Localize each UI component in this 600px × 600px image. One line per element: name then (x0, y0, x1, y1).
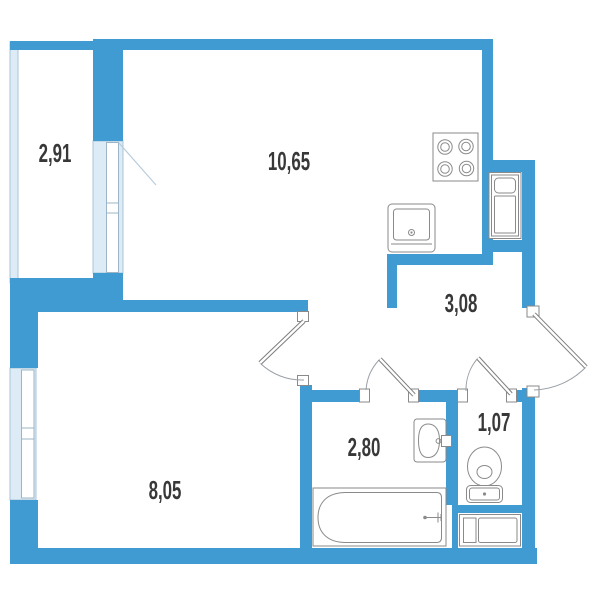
door-jamb (527, 386, 539, 397)
wall-balcony-top (10, 41, 95, 50)
wall-outer-left-upper (10, 278, 38, 368)
wall-hallway-left (387, 254, 397, 308)
door-jamb (360, 389, 370, 402)
wall-bathroom-wc (446, 390, 458, 505)
built-in-wardrobe-icon (489, 173, 521, 239)
wall-room-bathroom (300, 385, 312, 548)
balcony-door-swing-line (119, 143, 156, 185)
entrance-door (527, 306, 586, 397)
stove-icon (433, 133, 478, 181)
wall-outer-right-lower (522, 388, 535, 564)
area-label-bathroom: 2,80 (348, 432, 381, 462)
area-label-hallway: 3,08 (445, 288, 478, 318)
floor-plan-canvas: 2,91 10,65 3,08 8,05 2,80 1,07 (0, 0, 600, 600)
room-door (260, 312, 309, 386)
wall-balcony-partition-upper (93, 39, 123, 141)
wall-kitchen-bottom (387, 254, 493, 265)
balcony-glazing (10, 42, 18, 283)
wall-kitchen-top (93, 39, 493, 50)
balcony-window-divider (107, 203, 119, 213)
wall-outer-bottom (10, 548, 537, 564)
washing-machine-icon (460, 515, 521, 547)
bathroom-door (360, 359, 419, 402)
wall-washer-niche-left (452, 505, 458, 548)
area-label-balcony: 2,91 (39, 138, 72, 168)
washbasin-icon (414, 419, 452, 462)
floor-plan: 2,91 10,65 3,08 8,05 2,80 1,07 (0, 0, 600, 600)
bathtub-icon (313, 488, 446, 546)
area-label-wc: 1,07 (478, 407, 511, 437)
toilet-icon (467, 447, 503, 503)
wall-washer-niche-top (452, 505, 522, 513)
area-label-room: 8,05 (149, 475, 182, 505)
wall-niche-bottom (488, 240, 522, 252)
wall-room-top (122, 300, 308, 312)
area-label-kitchen: 10,65 (268, 146, 310, 176)
kitchen-sink-icon (388, 204, 435, 252)
wall-outer-right-upper (522, 160, 535, 308)
wc-door (458, 358, 517, 402)
wall-bathroom-top-left (312, 390, 361, 402)
room-window-divider (22, 428, 35, 439)
window-frames-layer (22, 143, 157, 499)
